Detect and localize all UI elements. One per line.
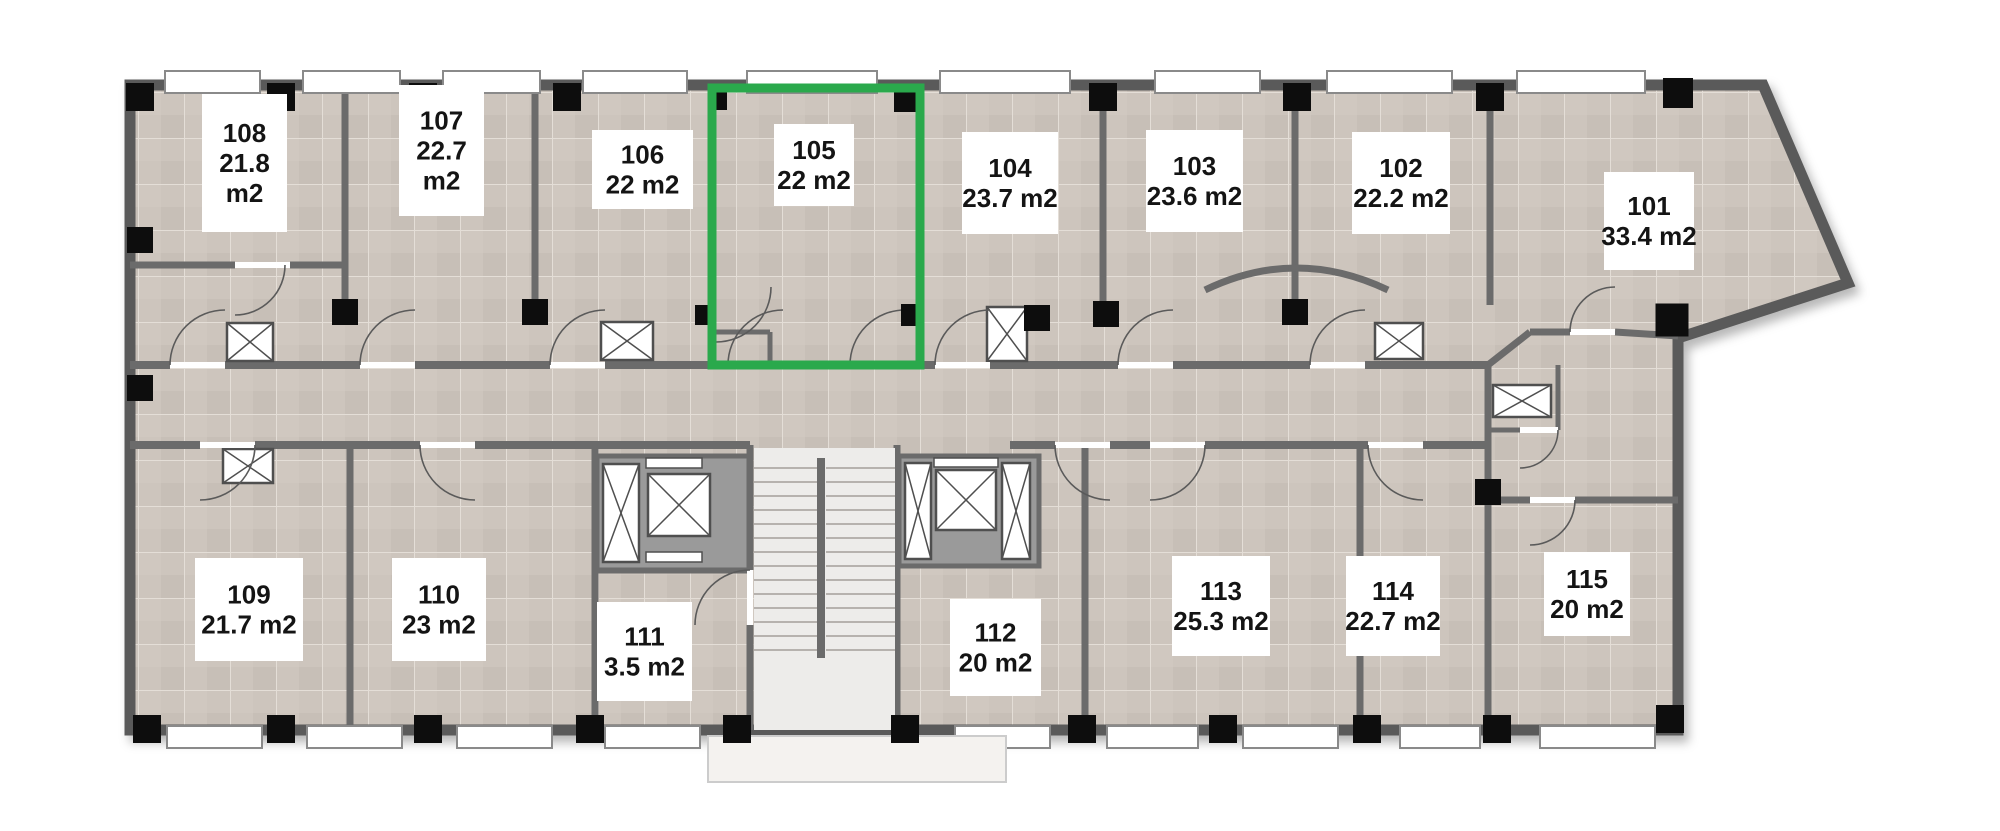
room-card-104[interactable]: 10423.7 m2	[962, 132, 1058, 234]
room-card-103[interactable]: 10323.6 m2	[1146, 130, 1243, 232]
floor-plan-svg: 10133.4 m210222.2 m210323.6 m210423.7 m2…	[0, 0, 2000, 831]
elevator-door-slot	[934, 458, 998, 467]
window	[1107, 726, 1198, 748]
window	[1517, 71, 1645, 93]
elevator-left	[597, 456, 749, 570]
column	[127, 375, 153, 401]
room-card-101[interactable]: 10133.4 m2	[1601, 172, 1696, 270]
room-card-112[interactable]: 11220 m2	[950, 599, 1041, 696]
window	[583, 71, 687, 93]
window	[1327, 71, 1452, 93]
window	[165, 71, 260, 93]
window	[1155, 71, 1260, 93]
floor-plan: 10133.4 m210222.2 m210323.6 m210423.7 m2…	[0, 0, 2000, 831]
window	[1400, 726, 1480, 748]
room-card-105[interactable]: 10522 m2	[774, 124, 854, 206]
window	[167, 726, 262, 748]
room-card-102[interactable]: 10222.2 m2	[1352, 132, 1450, 234]
room-card-114[interactable]: 11422.7 m2	[1345, 556, 1440, 656]
room-card-107[interactable]: 10722.7m2	[399, 85, 484, 216]
room-label-108: 10821.8m2	[219, 118, 270, 208]
room-card-111[interactable]: 1113.5 m2	[597, 602, 692, 701]
entrance-porch	[708, 736, 1006, 782]
room-card-110[interactable]: 11023 m2	[392, 558, 486, 661]
elevator-door-slot	[646, 552, 702, 562]
window	[303, 71, 400, 93]
window	[307, 726, 402, 748]
stair-divider	[817, 458, 825, 658]
room-card-113[interactable]: 11325.3 m2	[1172, 556, 1270, 656]
room-label-107: 10722.7m2	[416, 106, 467, 196]
window	[457, 726, 552, 748]
room-card-106[interactable]: 10622 m2	[592, 130, 693, 209]
window	[1540, 726, 1655, 748]
window	[940, 71, 1070, 93]
staircase	[754, 448, 895, 730]
window	[1243, 726, 1338, 748]
elevator-door-slot	[646, 458, 702, 468]
elevator-right	[899, 456, 1039, 566]
room-card-115[interactable]: 11520 m2	[1544, 552, 1630, 636]
room-card-109[interactable]: 10921.7 m2	[195, 558, 303, 661]
window	[605, 726, 700, 748]
room-card-108[interactable]: 10821.8m2	[202, 94, 287, 232]
